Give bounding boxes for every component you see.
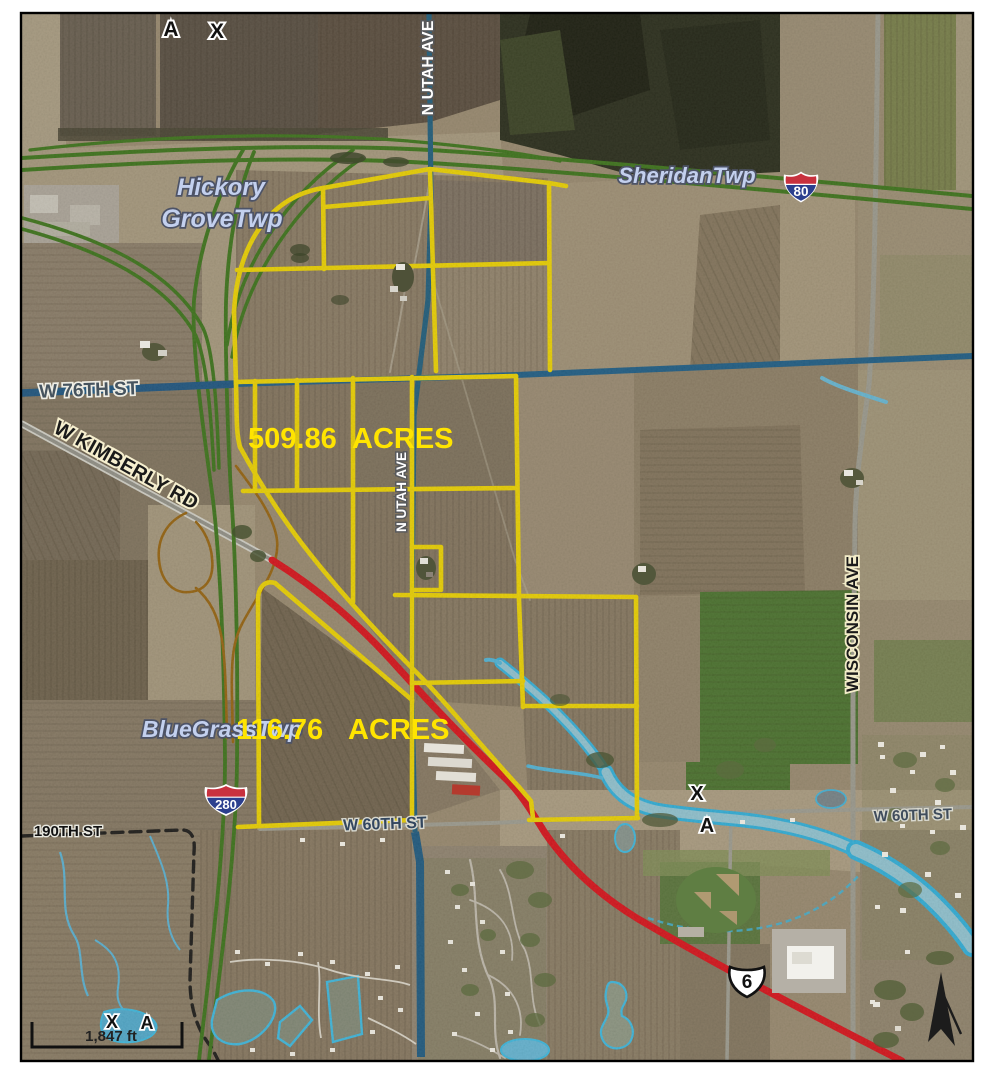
svg-text:SheridanTwp: SheridanTwp	[618, 163, 755, 188]
svg-text:X: X	[210, 20, 224, 43]
svg-text:W 60TH ST: W 60TH ST	[343, 815, 427, 835]
svg-text:GroveTwp: GroveTwp	[161, 205, 282, 233]
svg-text:W 76TH ST: W 76TH ST	[39, 378, 139, 402]
svg-text:X: X	[690, 783, 704, 805]
svg-text:A: A	[700, 815, 714, 837]
svg-text:WISCONSIN AVE: WISCONSIN AVE	[843, 556, 862, 692]
svg-text:Hickory: Hickory	[177, 174, 267, 201]
svg-text:A: A	[163, 18, 178, 41]
svg-text:6: 6	[742, 972, 753, 993]
svg-text:X: X	[106, 1012, 118, 1032]
svg-text:190TH ST: 190TH ST	[34, 823, 102, 840]
svg-text:509.86: 509.86	[248, 423, 337, 455]
svg-text:ACRES: ACRES	[348, 714, 450, 746]
svg-text:80: 80	[793, 184, 808, 199]
svg-text:W 60TH ST: W 60TH ST	[873, 806, 952, 826]
svg-text:A: A	[141, 1013, 154, 1033]
svg-text:116.76: 116.76	[236, 714, 323, 746]
svg-text:ACRES: ACRES	[352, 423, 454, 455]
svg-text:N UTAH AVE: N UTAH AVE	[420, 20, 437, 115]
svg-text:280: 280	[215, 797, 237, 812]
svg-text:N UTAH AVE: N UTAH AVE	[394, 452, 409, 532]
